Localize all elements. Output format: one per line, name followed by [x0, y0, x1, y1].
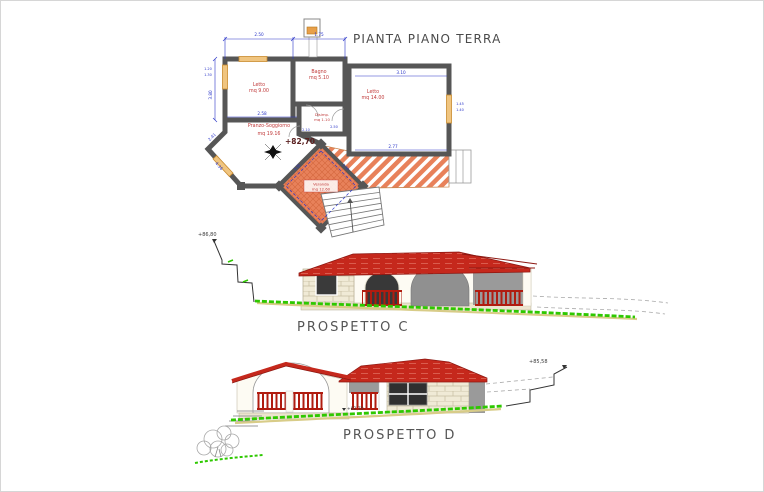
roof	[299, 252, 530, 276]
room-bagno	[293, 59, 345, 104]
corner-post	[523, 269, 531, 306]
room-letto-2	[349, 66, 449, 154]
terrain-dashed-right	[533, 296, 668, 314]
plan-level-label: +82,70	[285, 137, 315, 146]
elevation-d-label: PROSPETTO D	[343, 428, 456, 443]
dim-letto1-width: 2.50	[254, 32, 264, 37]
dim-letto2-lower: 2.77	[388, 144, 398, 149]
terrain-line-right	[506, 367, 567, 406]
grass-tuft	[195, 455, 263, 463]
dim-window-right-b: 1.40	[456, 108, 464, 112]
terrace-steps	[449, 150, 471, 183]
railing	[257, 391, 323, 412]
elevation-c-label: PROSPETTO C	[297, 320, 410, 335]
railing	[475, 291, 523, 306]
room-label-bagno-area: mq 5.10	[309, 75, 329, 81]
dim-pranzo-width: 2.58	[257, 111, 267, 116]
dim-disimp-b: 2.50	[330, 125, 338, 129]
architectural-drawing: PIANTA PIANO TERRA	[1, 1, 764, 492]
terrain-line-left	[214, 241, 254, 302]
elevation-d: +85,58	[195, 359, 567, 463]
room-label-bagno-name: Bagno	[311, 69, 326, 75]
floor-plan: PIANTA PIANO TERRA	[204, 19, 501, 237]
dim-window-left-a: 1.20	[204, 67, 212, 71]
level-d-top: +85,58	[529, 359, 548, 365]
level-c-top: +86,80	[198, 232, 217, 238]
window	[316, 275, 337, 295]
chimney	[304, 19, 320, 57]
room-label-letto2-name: Letto	[367, 89, 379, 95]
roof	[339, 359, 487, 382]
room-label-pranzo-area: mq 19.16	[258, 131, 281, 137]
house-c	[299, 252, 537, 310]
room-label-letto1-area: mq 9.00	[249, 88, 269, 94]
dim-window-left-b: 1.30	[204, 73, 212, 77]
drawing-sheet: PIANTA PIANO TERRA	[0, 0, 764, 492]
room-label-pranzo-name: Pranzo-Soggiorno	[248, 123, 290, 129]
room-label-disimp-area: mq 1.10	[314, 117, 330, 122]
room-label-veranda-area: mq 12.60	[312, 187, 331, 192]
dim-window-right-a: 1.45	[456, 102, 464, 106]
railing	[362, 291, 402, 306]
elevation-c: +86,80 PROSPETTO C	[198, 232, 668, 335]
tree-sketch	[197, 426, 239, 457]
level-d-ground: +82,70	[347, 406, 364, 412]
dim-bagno-width: 1.75	[314, 32, 324, 37]
dim-letto2-width: 3.10	[396, 70, 406, 75]
dim-disimp-a: 2.10	[302, 128, 310, 132]
room-label-letto1-name: Letto	[253, 82, 265, 88]
plan-title: PIANTA PIANO TERRA	[353, 32, 502, 46]
room-label-letto2-area: mq 14.00	[362, 95, 385, 101]
dim-left-wall: 3.80	[208, 90, 213, 100]
